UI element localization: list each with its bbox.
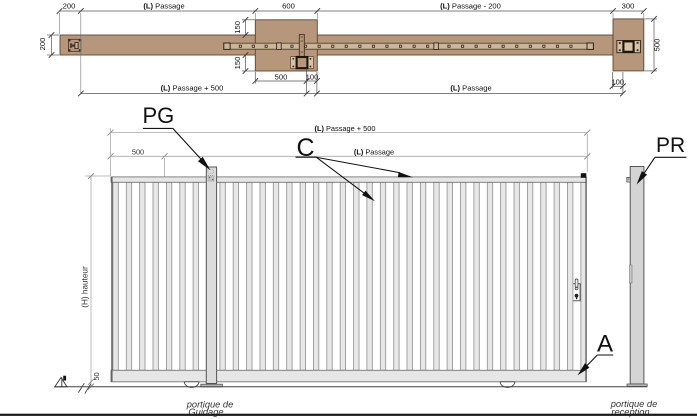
svg-text:(L) Passage: (L) Passage [450,84,491,93]
svg-text:(L) Passage - 200: (L) Passage - 200 [440,2,501,11]
svg-text:100: 100 [306,73,319,82]
svg-text:150: 150 [233,21,242,34]
svg-text:(L) Passage + 500: (L) Passage + 500 [161,84,224,93]
svg-text:(L) Passage + 500: (L) Passage + 500 [314,124,375,133]
svg-text:300: 300 [622,2,635,11]
svg-text:A: A [597,331,613,358]
svg-text:(L) Passage: (L) Passage [354,147,394,156]
svg-text:50: 50 [92,372,101,380]
svg-text:600: 600 [282,2,295,11]
svg-text:500: 500 [132,147,144,156]
svg-text:500: 500 [653,39,662,52]
svg-text:(L) Passage: (L) Passage [143,2,184,11]
svg-text:(H) hauteur: (H) hauteur [80,266,89,308]
svg-text:PR: PR [656,134,685,157]
svg-text:C: C [297,134,315,162]
svg-text:150: 150 [233,57,242,70]
svg-text:100: 100 [611,77,624,86]
svg-text:200: 200 [63,2,76,11]
svg-text:500: 500 [275,73,288,82]
svg-text:200: 200 [38,38,47,51]
svg-text:PG: PG [143,103,175,128]
